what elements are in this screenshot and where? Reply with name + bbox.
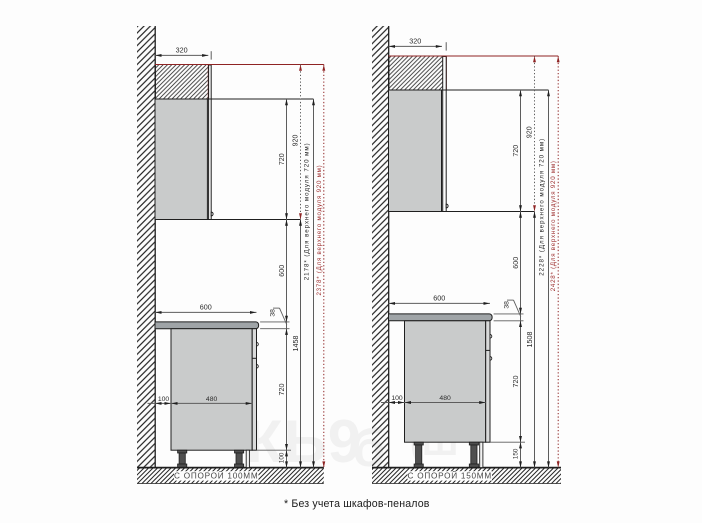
svg-text:150: 150 [512,448,519,459]
svg-text:100: 100 [158,396,170,403]
svg-text:2428* (Для верхнего модуля 920: 2428* (Для верхнего модуля 920 мм) [550,160,557,291]
svg-text:480: 480 [439,395,451,402]
svg-text:КЬ9: КЬ9 [246,408,362,475]
svg-text:720: 720 [279,153,286,165]
svg-text:38: 38 [269,309,276,317]
svg-text:320: 320 [176,46,188,55]
svg-text:2178* (Для верхнего модуля 720: 2178* (Для верхнего модуля 720 мм) [304,142,311,280]
svg-text:920: 920 [527,126,534,138]
svg-text:100: 100 [391,395,403,402]
svg-text:320: 320 [409,37,421,46]
svg-text:600: 600 [277,265,286,277]
svg-text:* Без учета шкафов-пеналов: * Без учета шкафов-пеналов [284,498,430,510]
svg-text:38: 38 [503,301,510,309]
svg-text:2228* (Для верхнего модуля 720: 2228* (Для верхнего модуля 720 мм) [539,138,546,276]
svg-text:1508: 1508 [525,332,534,348]
svg-text:720: 720 [277,383,286,395]
svg-text:720: 720 [513,145,520,157]
svg-text:600: 600 [200,303,212,312]
svg-text:480: 480 [206,396,218,403]
svg-text:С ОПОРОЙ 100ММ: С ОПОРОЙ 100ММ [174,470,258,481]
svg-text:100: 100 [278,452,285,463]
svg-text:720: 720 [511,376,520,388]
svg-text:С ОПОРОЙ 150ММ: С ОПОРОЙ 150ММ [408,470,492,481]
svg-text:600: 600 [511,257,520,269]
svg-text:600: 600 [433,294,445,303]
svg-text:2378* (Для верхнего модуля 920: 2378* (Для верхнего модуля 920 мм) [316,165,323,296]
svg-text:920: 920 [293,135,300,147]
svg-text:1458: 1458 [291,336,300,352]
